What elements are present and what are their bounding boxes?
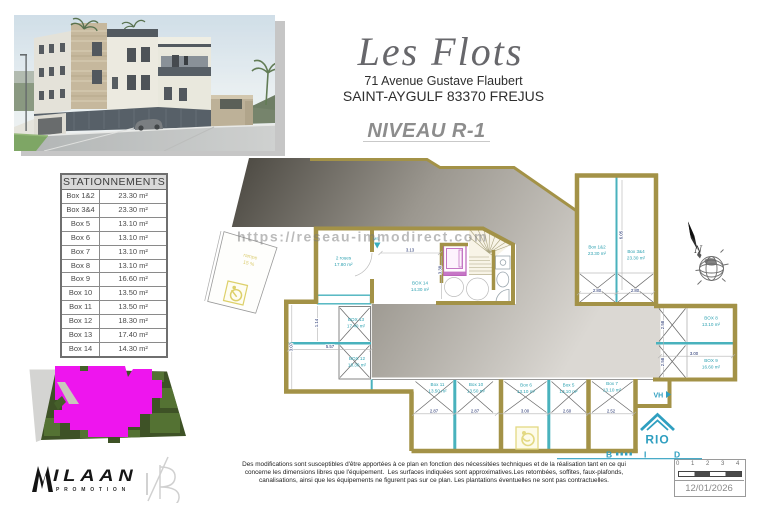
svg-text:Box 1&2: Box 1&2 bbox=[588, 245, 606, 250]
svg-text:3.00: 3.00 bbox=[690, 351, 699, 356]
svg-text:BOX 14: BOX 14 bbox=[412, 281, 429, 286]
svg-text:RIO: RIO bbox=[645, 433, 669, 447]
svg-text:18.30 m²: 18.30 m² bbox=[348, 363, 367, 368]
svg-text:2.52: 2.52 bbox=[607, 408, 616, 413]
svg-text:13.10 m²: 13.10 m² bbox=[517, 389, 536, 394]
svg-text:3.13: 3.13 bbox=[406, 248, 415, 253]
svg-text:N: N bbox=[693, 242, 703, 256]
svg-text:13.50 m²: 13.50 m² bbox=[428, 389, 447, 394]
svg-text:BOX 12: BOX 12 bbox=[349, 356, 366, 361]
svg-text:23.30 m²: 23.30 m² bbox=[588, 251, 607, 256]
svg-text:2.80: 2.80 bbox=[593, 288, 602, 293]
svg-text:Box 7: Box 7 bbox=[606, 381, 618, 386]
svg-text:Box 5: Box 5 bbox=[563, 383, 575, 388]
svg-text:2.80: 2.80 bbox=[631, 288, 640, 293]
svg-text:2.87: 2.87 bbox=[430, 408, 439, 413]
svg-text:13.50 m²: 13.50 m² bbox=[467, 389, 486, 394]
svg-text:5.57: 5.57 bbox=[326, 344, 335, 349]
svg-text:13.10 m²: 13.10 m² bbox=[559, 389, 578, 394]
svg-text:Box 3&4: Box 3&4 bbox=[627, 249, 645, 254]
svg-text:1.14: 1.14 bbox=[314, 318, 319, 327]
svg-text:Box 6: Box 6 bbox=[520, 383, 532, 388]
svg-text:14.30 m²: 14.30 m² bbox=[411, 287, 430, 292]
svg-text:2.87: 2.87 bbox=[471, 408, 480, 413]
svg-text:3.07: 3.07 bbox=[288, 342, 293, 351]
svg-text:2.60: 2.60 bbox=[563, 408, 572, 413]
svg-text:2.58: 2.58 bbox=[660, 357, 665, 366]
svg-text:Box 11: Box 11 bbox=[431, 382, 445, 387]
svg-text:https://reseau-immodirect.com: https://reseau-immodirect.com bbox=[237, 229, 488, 245]
svg-text:23.30 m²: 23.30 m² bbox=[627, 256, 646, 261]
svg-text:Box 10: Box 10 bbox=[469, 382, 484, 387]
svg-text:B: B bbox=[606, 450, 612, 460]
svg-text:3.00: 3.00 bbox=[521, 408, 530, 413]
svg-text:13.10 m²: 13.10 m² bbox=[603, 388, 622, 393]
svg-text:2.58: 2.58 bbox=[660, 320, 665, 329]
svg-text:D: D bbox=[674, 450, 680, 460]
svg-text:17.40 m²: 17.40 m² bbox=[347, 324, 366, 329]
svg-text:17.80 m²: 17.80 m² bbox=[334, 262, 353, 267]
svg-text:2 roues: 2 roues bbox=[336, 256, 352, 261]
svg-text:BOX 8: BOX 8 bbox=[704, 316, 718, 321]
svg-text:BOX 13: BOX 13 bbox=[348, 317, 365, 322]
svg-text:I: I bbox=[644, 450, 646, 460]
svg-text:6.05: 6.05 bbox=[619, 230, 624, 239]
svg-text:16.60 m²: 16.60 m² bbox=[702, 365, 721, 370]
svg-text:13.10 m²: 13.10 m² bbox=[702, 322, 721, 327]
svg-text:BOX 9: BOX 9 bbox=[704, 358, 718, 363]
svg-text:3.38: 3.38 bbox=[438, 265, 443, 274]
svg-text:VH: VH bbox=[654, 393, 664, 400]
